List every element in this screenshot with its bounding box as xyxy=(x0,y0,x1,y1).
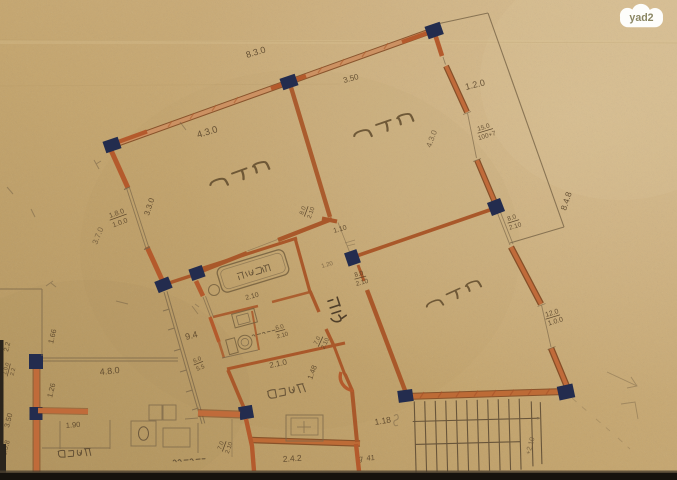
svg-text:2.4.2: 2.4.2 xyxy=(282,453,302,464)
svg-text:1.90: 1.90 xyxy=(65,420,80,430)
svg-text:yad2: yad2 xyxy=(629,12,653,24)
svg-text:4.8.0: 4.8.0 xyxy=(99,365,120,377)
